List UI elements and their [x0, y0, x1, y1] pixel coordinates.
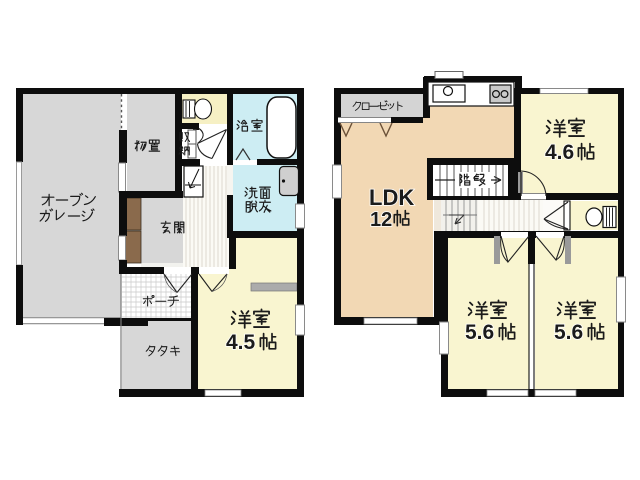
svg-text:12: 12: [370, 209, 392, 231]
svg-text:4.5: 4.5: [226, 331, 256, 354]
svg-text:4.6: 4.6: [545, 141, 574, 164]
svg-text:5.6: 5.6: [554, 321, 583, 344]
svg-text:LDK: LDK: [369, 185, 414, 210]
svg-text:5.6: 5.6: [465, 321, 494, 344]
